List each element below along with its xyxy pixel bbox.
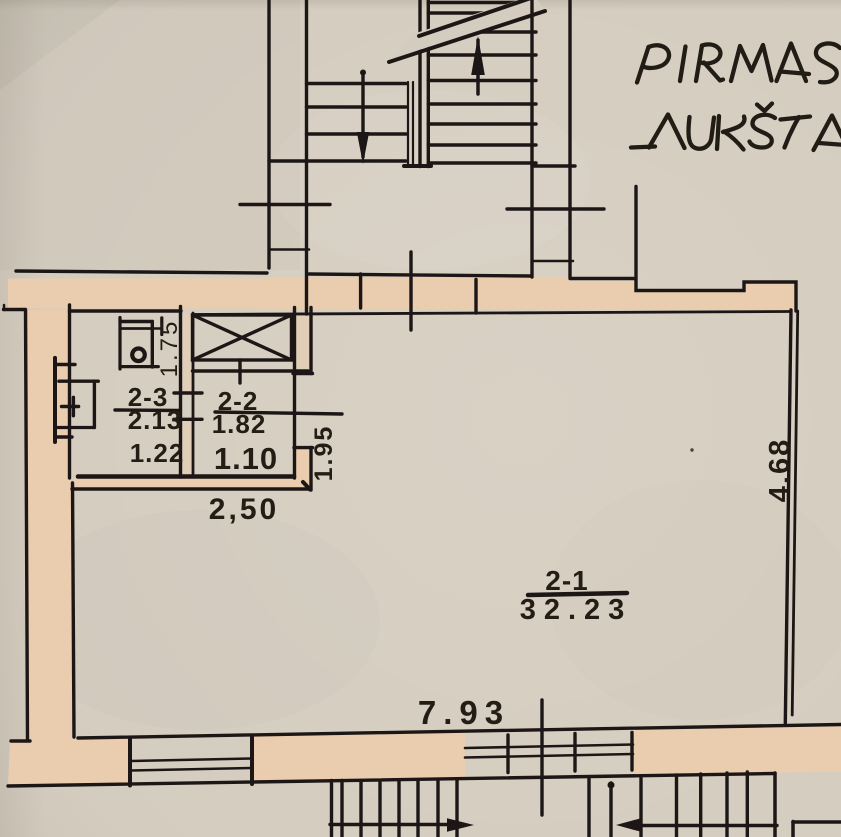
svg-text:1.82: 1.82	[212, 409, 267, 439]
svg-text:1.75: 1.75	[156, 319, 183, 378]
svg-text:2.13: 2.13	[128, 405, 183, 435]
svg-text:4.68: 4.68	[764, 438, 796, 502]
svg-text:7.93: 7.93	[418, 694, 510, 731]
svg-text:2-1: 2-1	[545, 565, 588, 596]
svg-text:2,50: 2,50	[209, 493, 279, 526]
svg-text:1.10: 1.10	[214, 441, 278, 476]
svg-text:32.23: 32.23	[520, 594, 633, 626]
svg-text:1.95: 1.95	[310, 425, 338, 482]
svg-text:1.22: 1.22	[130, 438, 185, 468]
